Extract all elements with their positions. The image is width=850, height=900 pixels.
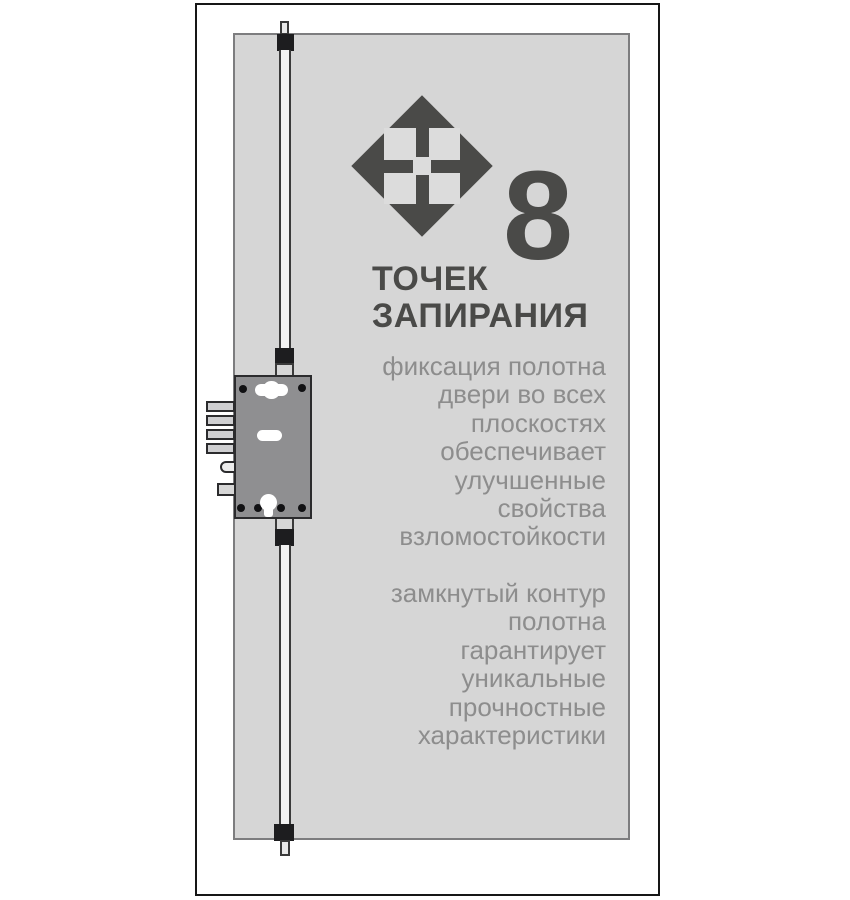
rod-bottom-connector-block xyxy=(274,824,294,841)
deadbolt-4 xyxy=(206,443,235,454)
paragraph-fixation-benefits: фиксация полотна двери во всех плоскостя… xyxy=(350,352,606,551)
deadbolt-2 xyxy=(206,415,235,426)
headline-locking-points: ТОЧЕК ЗАПИРАНИЯ xyxy=(372,261,632,335)
handle-spindle-hub xyxy=(263,381,280,399)
rod-top-tip xyxy=(280,21,289,35)
rod-block-above-lock xyxy=(275,348,294,364)
screw-bottom-4 xyxy=(298,504,306,512)
locking-rod-lower xyxy=(279,545,291,825)
lock-middle-slot xyxy=(257,430,282,441)
logo-center-gap xyxy=(413,157,431,175)
screw-top-right xyxy=(298,384,306,392)
rod-top-connector-block xyxy=(277,34,294,51)
locking-rod-upper xyxy=(279,50,291,349)
paragraph-closed-contour: замкнутый контур полотна гарантирует уни… xyxy=(350,579,606,749)
screw-top-left xyxy=(239,385,247,393)
infographic-page: 8 ТОЧЕК ЗАПИРАНИЯ фиксация полотна двери… xyxy=(0,0,850,900)
deadbolt-3 xyxy=(206,429,235,440)
rod-block-below-lock xyxy=(275,529,294,546)
screw-bottom-3 xyxy=(277,504,285,512)
deadbolt-1 xyxy=(206,401,235,412)
logo-inner-square xyxy=(384,128,460,204)
keyhole-stem xyxy=(264,504,273,517)
rod-bottom-tip xyxy=(280,840,290,856)
screw-bottom-1 xyxy=(237,504,245,512)
